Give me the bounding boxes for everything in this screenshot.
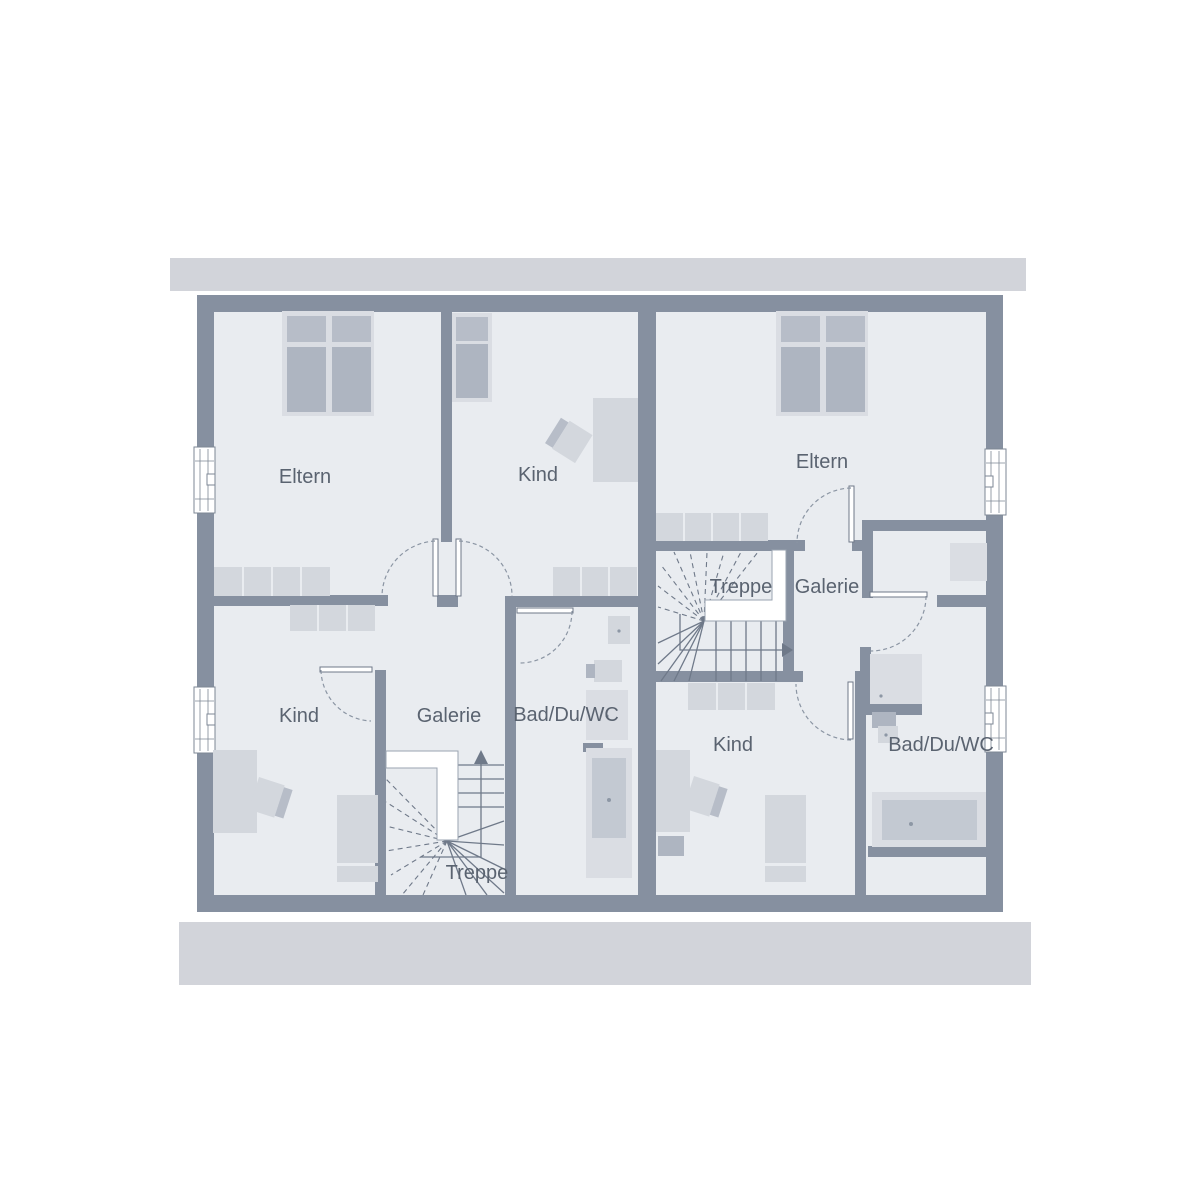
- wall-galerie-right-east-upper: [862, 525, 873, 598]
- shower: [870, 654, 922, 704]
- wall-bad-right-south: [868, 846, 986, 857]
- room-label-treppe-right: Treppe: [710, 576, 773, 598]
- room-label-kind-right: Kind: [713, 734, 753, 756]
- wardrobe: [553, 567, 637, 596]
- window-left-bottom: [194, 687, 215, 753]
- wall-divider-left: [441, 312, 452, 542]
- shelf: [337, 866, 378, 882]
- door-leaf-kind-left: [320, 667, 372, 672]
- door-leaf-eltern-right: [849, 486, 854, 542]
- single-bed: [213, 750, 257, 833]
- single-bed: [656, 750, 690, 832]
- desk: [337, 795, 378, 863]
- wall-bad-left-west: [505, 596, 516, 895]
- roof-band-top: [170, 258, 1026, 291]
- bathtub: [882, 800, 977, 840]
- roof-band-bottom: [179, 922, 1031, 985]
- sink: [594, 660, 622, 682]
- wardrobe: [290, 605, 375, 631]
- wall-eltern-left-south: [214, 595, 388, 606]
- room-label-bad-right: Bad/Du/WC: [888, 734, 994, 756]
- room-label-galerie-right: Galerie: [795, 576, 859, 598]
- door-leaf-kind-right: [848, 682, 853, 739]
- floor-plan-canvas: Eltern Kind Eltern Treppe Galerie Kind G…: [0, 0, 1200, 1200]
- door-leaf-kind-top: [456, 539, 461, 596]
- wall-storage-south: [937, 595, 986, 607]
- wardrobe: [688, 683, 775, 710]
- room-label-galerie-left: Galerie: [417, 705, 481, 727]
- shelf: [765, 866, 806, 882]
- window-left-top: [194, 447, 215, 513]
- room-label-kind-top: Kind: [518, 464, 558, 486]
- wall-storage-north: [862, 520, 986, 531]
- cabinet: [950, 543, 987, 581]
- room-label-eltern-right: Eltern: [796, 451, 848, 473]
- wall-kind-right-east: [855, 671, 866, 895]
- desk: [765, 795, 806, 863]
- sink: [872, 712, 896, 728]
- wall-kind-top-south: [507, 596, 638, 607]
- room-label-bad-left: Bad/Du/WC: [513, 704, 619, 726]
- room-label-treppe-left: Treppe: [446, 862, 509, 884]
- room-label-kind-left: Kind: [279, 705, 319, 727]
- door-leaf-bad-left: [517, 608, 573, 613]
- party-wall: [638, 312, 656, 895]
- room-label-eltern-left: Eltern: [279, 466, 331, 488]
- wall-eltern-right-south: [656, 540, 805, 551]
- door-leaf-eltern-left: [433, 539, 438, 596]
- desk: [593, 398, 638, 482]
- window-right-top: [985, 449, 1006, 515]
- nightstand: [658, 836, 684, 856]
- wall-stub-left: [437, 595, 458, 607]
- door-leaf-bad-right: [870, 592, 927, 597]
